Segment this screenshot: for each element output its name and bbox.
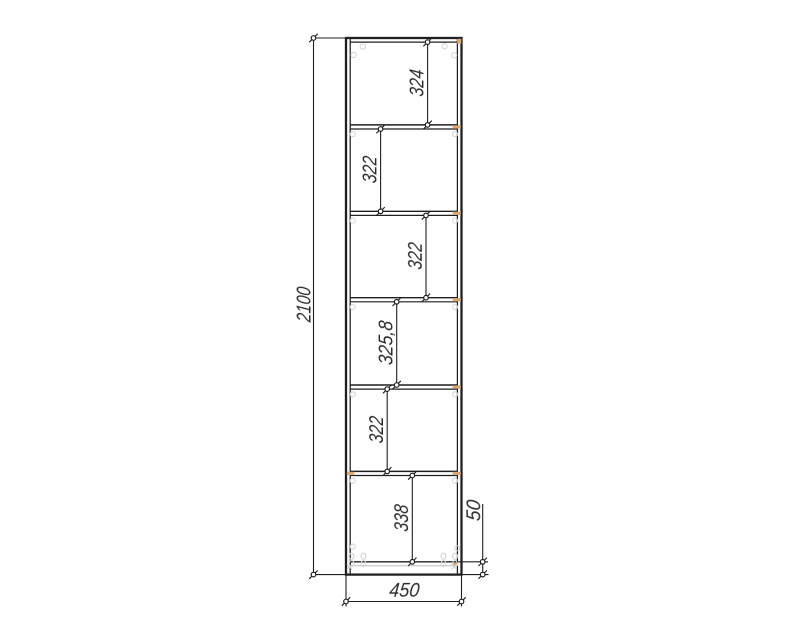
svg-text:322: 322	[359, 155, 381, 184]
svg-text:50: 50	[463, 499, 485, 522]
svg-text:450: 450	[388, 580, 420, 602]
svg-text:322: 322	[366, 415, 388, 444]
svg-text:325,8: 325,8	[376, 319, 398, 366]
svg-text:338: 338	[391, 503, 413, 533]
svg-text:322: 322	[405, 241, 427, 270]
svg-text:2100: 2100	[294, 286, 316, 324]
svg-text:324: 324	[406, 68, 428, 97]
